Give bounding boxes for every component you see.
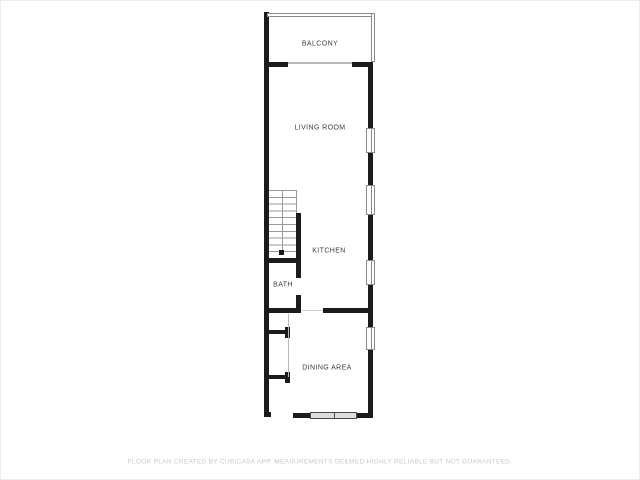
bath-bottom-wall	[264, 308, 301, 313]
room-label-kitchen: KITCHEN	[312, 248, 346, 255]
kitchen-dining-opening-line	[302, 310, 323, 311]
staircase	[269, 190, 296, 258]
stair-center-line	[282, 190, 283, 251]
window-mullion	[371, 261, 372, 284]
room-label-bath: BATH	[273, 282, 293, 289]
footer-disclaimer: FLOOR PLAN CREATED BY CUBICASA APP. MEAS…	[128, 459, 513, 466]
bath-right-wall-upper	[296, 263, 301, 278]
exterior-wall-right-seg5	[368, 350, 373, 413]
window-living-room-2	[366, 185, 375, 215]
stair-right-wall	[296, 213, 301, 258]
closet-front-line	[288, 314, 289, 377]
exterior-wall-right-seg3	[368, 215, 373, 260]
room-label-balcony: BALCONY	[302, 41, 338, 48]
window-dining	[366, 327, 375, 350]
bath-right-wall-lower	[296, 295, 301, 308]
exterior-wall-right-seg2	[368, 153, 373, 185]
balcony-sliding-door-line	[288, 62, 352, 64]
floor-plan-canvas: BALCONY LIVING ROOM KITCHEN BATH DINING …	[0, 0, 640, 480]
balcony-railing-top	[267, 13, 375, 17]
window-mullion	[371, 186, 372, 214]
exterior-wall-right-seg1	[368, 62, 373, 128]
kitchen-dining-divider-wall	[323, 308, 373, 313]
balcony-wall-left-segment	[269, 62, 288, 67]
exterior-wall-bottom-left-foot	[264, 412, 271, 417]
exterior-wall-right-seg4	[368, 285, 373, 327]
room-label-living-room: LIVING ROOM	[294, 125, 345, 132]
window-mullion	[371, 328, 372, 349]
window-tick	[334, 413, 335, 418]
balcony-railing-right	[371, 13, 375, 62]
stair-upper-edge-line	[296, 190, 297, 213]
window-kitchen	[366, 260, 375, 285]
window-living-room-1	[366, 128, 375, 153]
bottom-window-sliding-door	[310, 412, 357, 419]
window-mullion	[371, 129, 372, 152]
stair-walkline-dot	[279, 250, 284, 255]
room-label-dining-area: DINING AREA	[302, 365, 352, 372]
